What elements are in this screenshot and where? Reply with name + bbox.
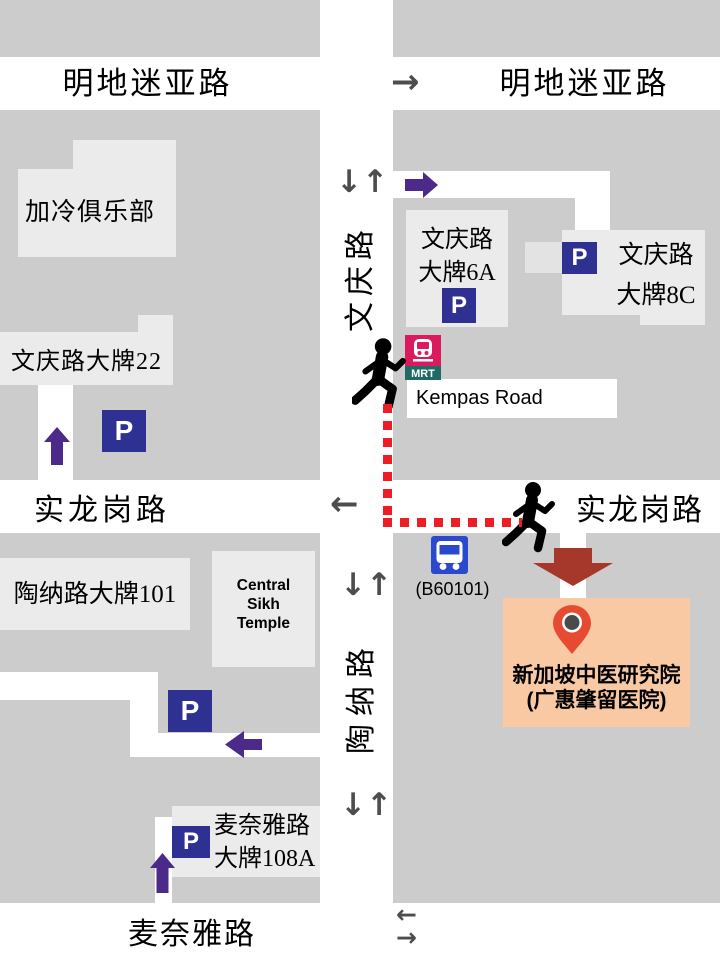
purple-right-arrow-sideroad <box>405 172 438 198</box>
blk108a-line1: 麦奈雅路 <box>214 810 320 843</box>
mcnair-right-arrow: → <box>396 926 417 949</box>
building-label-blk6a: 文庆路大牌6A <box>406 222 508 292</box>
building-label-kallang-club: 加冷俱乐部 <box>20 194 160 226</box>
road-label-bendemeer-left: 明地迷亚路 <box>55 60 240 100</box>
mrt-station-icon: MRT <box>405 335 441 380</box>
blk6a-line1: 文庆路 <box>418 224 495 257</box>
temple-line2: Sikh <box>237 595 290 614</box>
destination-line2: (广惠肇留医院) <box>513 688 681 713</box>
destination-line1: 新加坡中医研究院 <box>513 663 681 688</box>
one-way-left-arrow-serangoon: ← <box>330 484 359 524</box>
two-way-arrow-mcnair: ← → <box>396 903 417 949</box>
bus-stop-code: (B60101) <box>400 577 505 601</box>
building-blk22-notch <box>138 315 173 332</box>
location-pin-icon <box>552 605 592 655</box>
blk8c-line2: 大牌8C <box>616 276 695 316</box>
two-way-arrow-towner-upper: ↓↑ <box>340 567 392 603</box>
road-label-towner: 陶纳路 <box>340 632 376 762</box>
walking-route-horizontal <box>383 518 522 527</box>
wayfinding-map: 加冷俱乐部 文庆路大牌22 文庆路大牌6A P P 文庆路大牌8C 陶纳路大牌1… <box>0 0 720 960</box>
pedestrian-icon-mrt <box>352 337 408 412</box>
block-top-left <box>0 0 320 57</box>
road-label-serangoon-left: 实龙岗路 <box>28 489 176 525</box>
parking-icon-blk8c: P <box>562 242 597 274</box>
road-label-serangoon-right: 实龙岗路 <box>570 489 710 525</box>
blk8c-line1: 文庆路 <box>616 236 695 276</box>
two-way-arrow-towner-lower: ↓↑ <box>340 787 392 823</box>
road-label-boon-keng: 文庆路 <box>340 220 374 336</box>
driveway-101-a <box>0 672 158 700</box>
side-road-vertical <box>575 198 610 232</box>
blk108a-line2: 大牌108A <box>214 843 320 876</box>
destination-arrow <box>533 548 613 586</box>
purple-up-arrow-blk22 <box>44 427 70 465</box>
building-label-blk101: 陶纳路大牌101 <box>5 577 185 607</box>
blk6a-line2: 大牌6A <box>418 257 495 290</box>
kempas-road-label-box: Kempas Road <box>407 379 617 418</box>
walking-route-vertical <box>383 404 392 524</box>
parking-icon-driveway101: P <box>168 690 212 732</box>
parking-icon-blk22: P <box>102 410 146 452</box>
temple-line3: Temple <box>237 614 290 633</box>
building-label-blk22: 文庆路大牌22 <box>4 342 169 374</box>
building-label-blk108a: 麦奈雅路大牌108A <box>214 810 320 874</box>
purple-up-arrow-blk108a <box>150 853 175 893</box>
road-label-mcnair: 麦奈雅路 <box>122 912 262 950</box>
building-label-blk8c: 文庆路大牌8C <box>604 238 708 314</box>
pedestrian-icon-serangoon <box>502 481 558 553</box>
destination-label: 新加坡中医研究院(广惠肇留医院) <box>503 658 690 718</box>
two-way-arrow-boonkeng: ↓↑ <box>336 164 388 200</box>
building-label-sikh-temple: CentralSikhTemple <box>212 574 315 634</box>
road-label-bendemeer-right: 明地迷亚路 <box>492 60 677 100</box>
building-blk8c-patch <box>525 242 562 273</box>
bus-stop-icon <box>431 536 468 574</box>
kempas-road-label: Kempas Road <box>407 387 543 410</box>
one-way-right-arrow-bendemeer: → <box>391 62 420 102</box>
purple-left-arrow-driveway101 <box>225 731 262 758</box>
parking-icon-blk6a: P <box>442 288 476 323</box>
svg-text:MRT: MRT <box>411 368 435 380</box>
parking-icon-blk108a: P <box>172 826 210 858</box>
block-top-right <box>393 0 720 57</box>
temple-line1: Central <box>237 576 290 595</box>
